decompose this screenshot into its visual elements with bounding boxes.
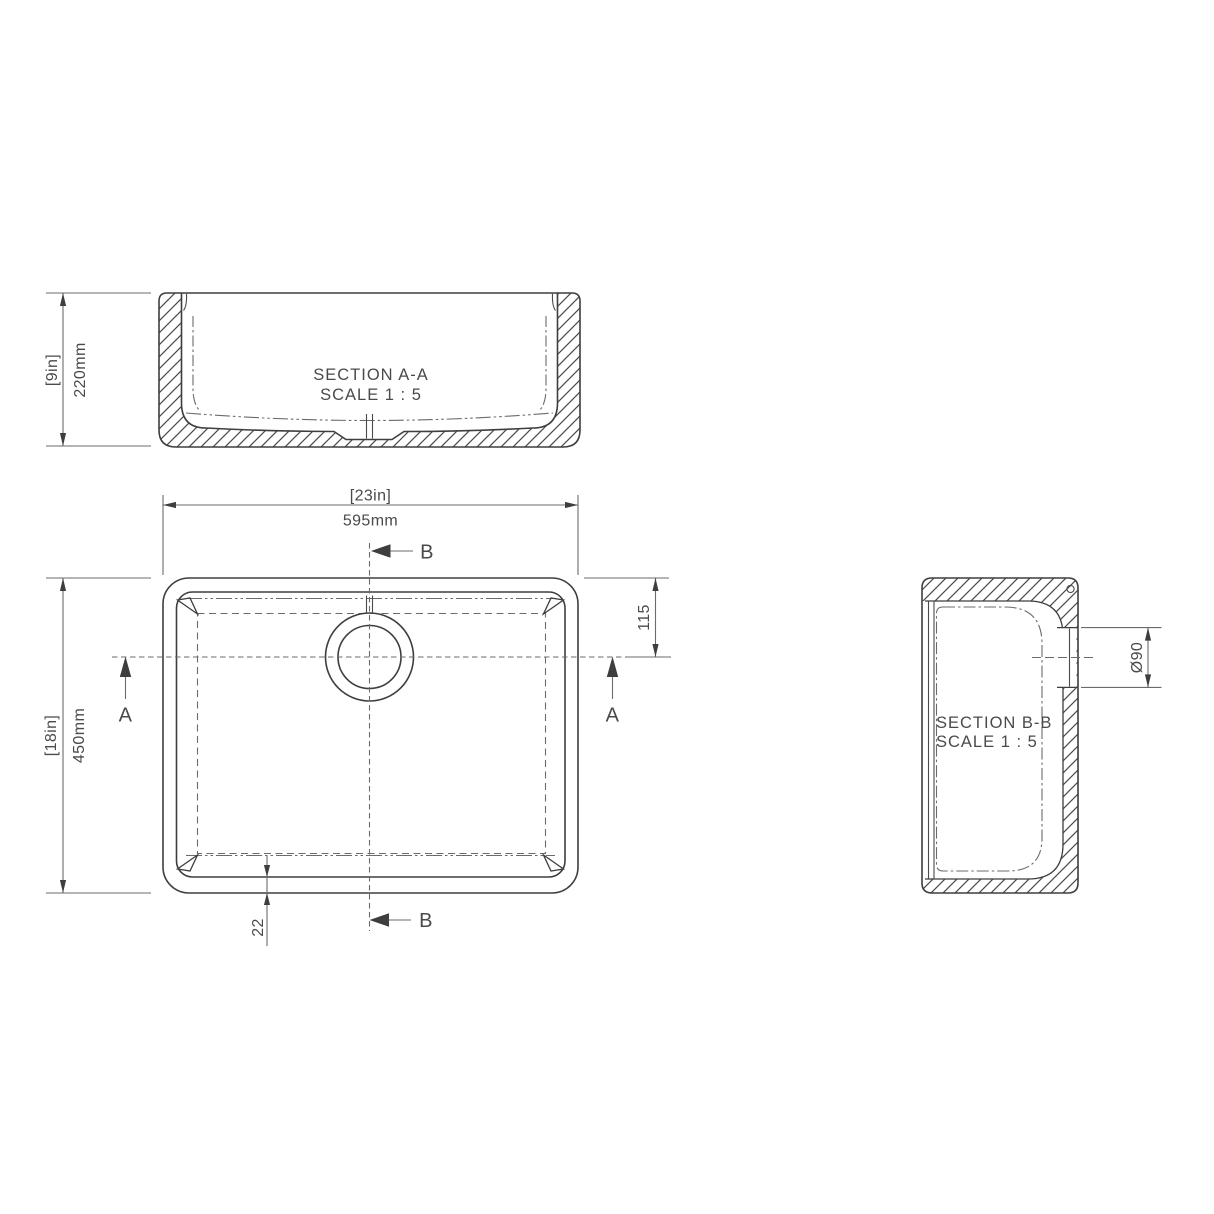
sheet-background: [0, 0, 1214, 1214]
section-label-a-right: A: [606, 705, 620, 727]
section-bb-title: SECTION B-B: [936, 714, 1052, 732]
section-label-b-top: B: [420, 542, 434, 564]
section-label-b-bottom: B: [419, 910, 433, 932]
section-aa-title: SECTION A-A: [313, 366, 429, 384]
dim-width-inches: [23in]: [350, 488, 392, 505]
sink-technical-drawing: SECTION A-A SCALE 1 : 5 [9in] 220mm B B: [0, 0, 1214, 1214]
section-aa-scale: SCALE 1 : 5: [320, 386, 422, 404]
section-bb-scale: SCALE 1 : 5: [936, 733, 1038, 751]
dim-depth-mm: 450mm: [71, 708, 88, 763]
dim-width-mm: 595mm: [343, 513, 398, 530]
dim-drain-offset: 115: [636, 604, 653, 631]
dim-height-mm: 220mm: [72, 342, 89, 397]
dim-depth-inches: [18in]: [43, 715, 60, 757]
dim-wall-thickness: 22: [250, 918, 267, 937]
dim-drain-diameter: Ø90: [1129, 642, 1146, 673]
section-label-a-left: A: [119, 705, 133, 727]
technical-drawing-sheet: SECTION A-A SCALE 1 : 5 [9in] 220mm B B: [0, 0, 1214, 1214]
dim-height-inches: [9in]: [44, 354, 61, 386]
